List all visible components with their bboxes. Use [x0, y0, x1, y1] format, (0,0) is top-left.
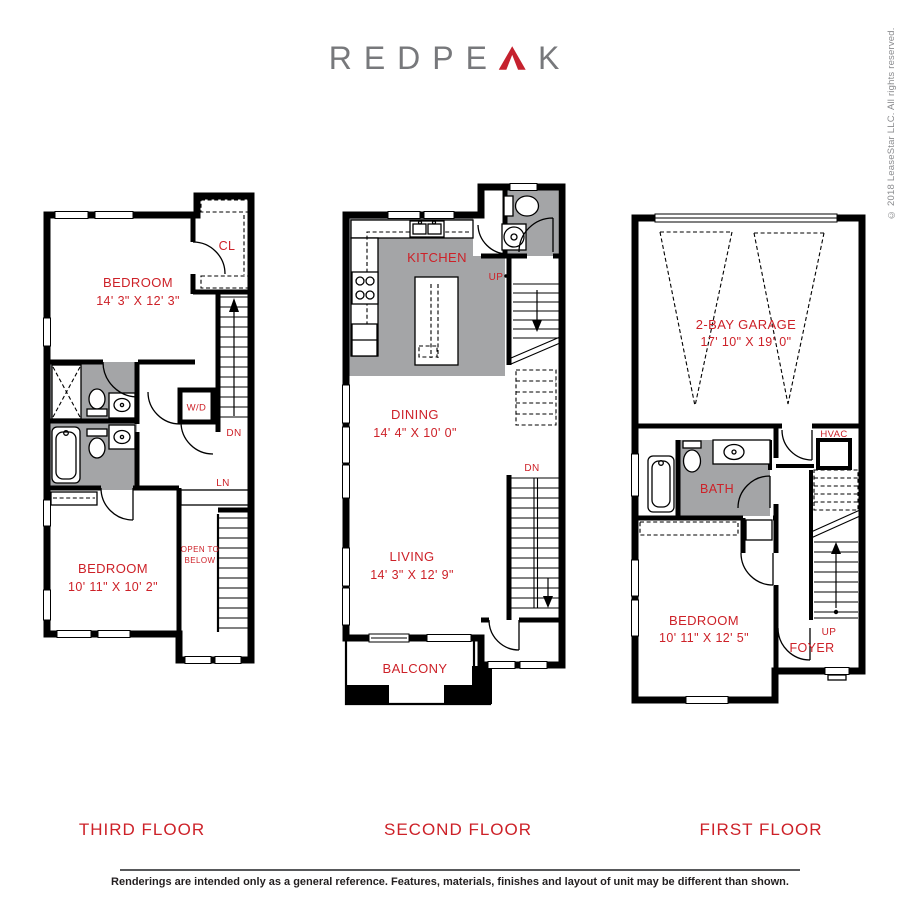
third-floor-title: THIRD FLOOR [79, 820, 205, 840]
first-floor-title: FIRST FLOOR [699, 820, 822, 840]
toilet-icon [87, 389, 107, 416]
room-dims: 14' 3" X 12' 3" [96, 294, 180, 308]
bathtub-icon [648, 456, 674, 512]
room-label: LIVING [389, 549, 434, 564]
refrigerator-icon [352, 324, 377, 356]
room-label: 2-BAY GARAGE [696, 317, 796, 332]
bathtub-icon [52, 427, 80, 483]
hvac-label: HVAC [820, 429, 847, 440]
floor-plan-sheet: REDPE K © 2018 LeaseStar LLC. All rights… [0, 0, 900, 900]
sink-icon [713, 440, 770, 464]
open-to-below-label: OPEN TO [181, 545, 220, 554]
up-label: UP [822, 627, 837, 638]
room-dims: 10' 11" X 12' 5" [659, 631, 749, 645]
room-label: BEDROOM [78, 561, 148, 576]
logo-text-end: K [538, 42, 571, 74]
disclaimer-text: Renderings are intended only as a genera… [0, 876, 900, 888]
second-floor-title: SECOND FLOOR [384, 820, 532, 840]
room-label: BALCONY [383, 661, 448, 676]
toilet-icon [683, 441, 701, 472]
linen-label: LN [216, 478, 230, 489]
room-dims: 17' 10" X 19' 0" [701, 335, 792, 349]
red-peak-icon [499, 46, 526, 70]
copyright-text: © 2018 LeaseStar LLC. All rights reserve… [886, 10, 897, 220]
kitchen-sink-icon [410, 221, 444, 237]
room-label: BEDROOM [669, 613, 739, 628]
closet-label: CL [219, 239, 236, 253]
sliding-door-icon [369, 634, 409, 642]
redpeak-logo: REDPE K [329, 42, 572, 74]
room-label: DINING [391, 407, 439, 422]
room-label: KITCHEN [407, 250, 467, 265]
room-dims: 10' 11" X 10' 2" [68, 580, 158, 594]
sink-icon [109, 425, 135, 449]
garage-door-icon [655, 214, 837, 222]
footer-divider [120, 869, 800, 871]
stove-icon [352, 272, 378, 304]
up-label: UP [489, 272, 504, 283]
second-floor-plan: KITCHEN UP DINING 14' 4" X 10' 0" DN LIV… [341, 180, 571, 715]
toilet-icon [504, 196, 539, 216]
entry-door-icon [825, 668, 849, 681]
room-label: BEDROOM [103, 275, 173, 290]
logo-text-start: REDPE [329, 42, 499, 74]
down-label: DN [226, 428, 241, 439]
kitchen-island [415, 277, 458, 365]
room-dims: 14' 4" X 10' 0" [373, 426, 457, 440]
foyer-label: FOYER [789, 641, 834, 655]
toilet-icon [87, 429, 107, 458]
shower-icon [52, 365, 81, 419]
room-label: BATH [700, 482, 734, 496]
hvac-closet [818, 440, 850, 468]
third-floor-plan: BEDROOM 14' 3" X 12' 3" CL W/D DN LN OPE… [43, 192, 258, 672]
open-to-below-label: BELOW [185, 556, 216, 565]
first-floor-plan: 2-BAY GARAGE 17' 10" X 19' 0" HVAC BATH … [628, 208, 868, 708]
washer-dryer-label: W/D [187, 403, 207, 414]
down-label: DN [524, 463, 539, 474]
room-dims: 14' 3" X 12' 9" [370, 568, 454, 582]
